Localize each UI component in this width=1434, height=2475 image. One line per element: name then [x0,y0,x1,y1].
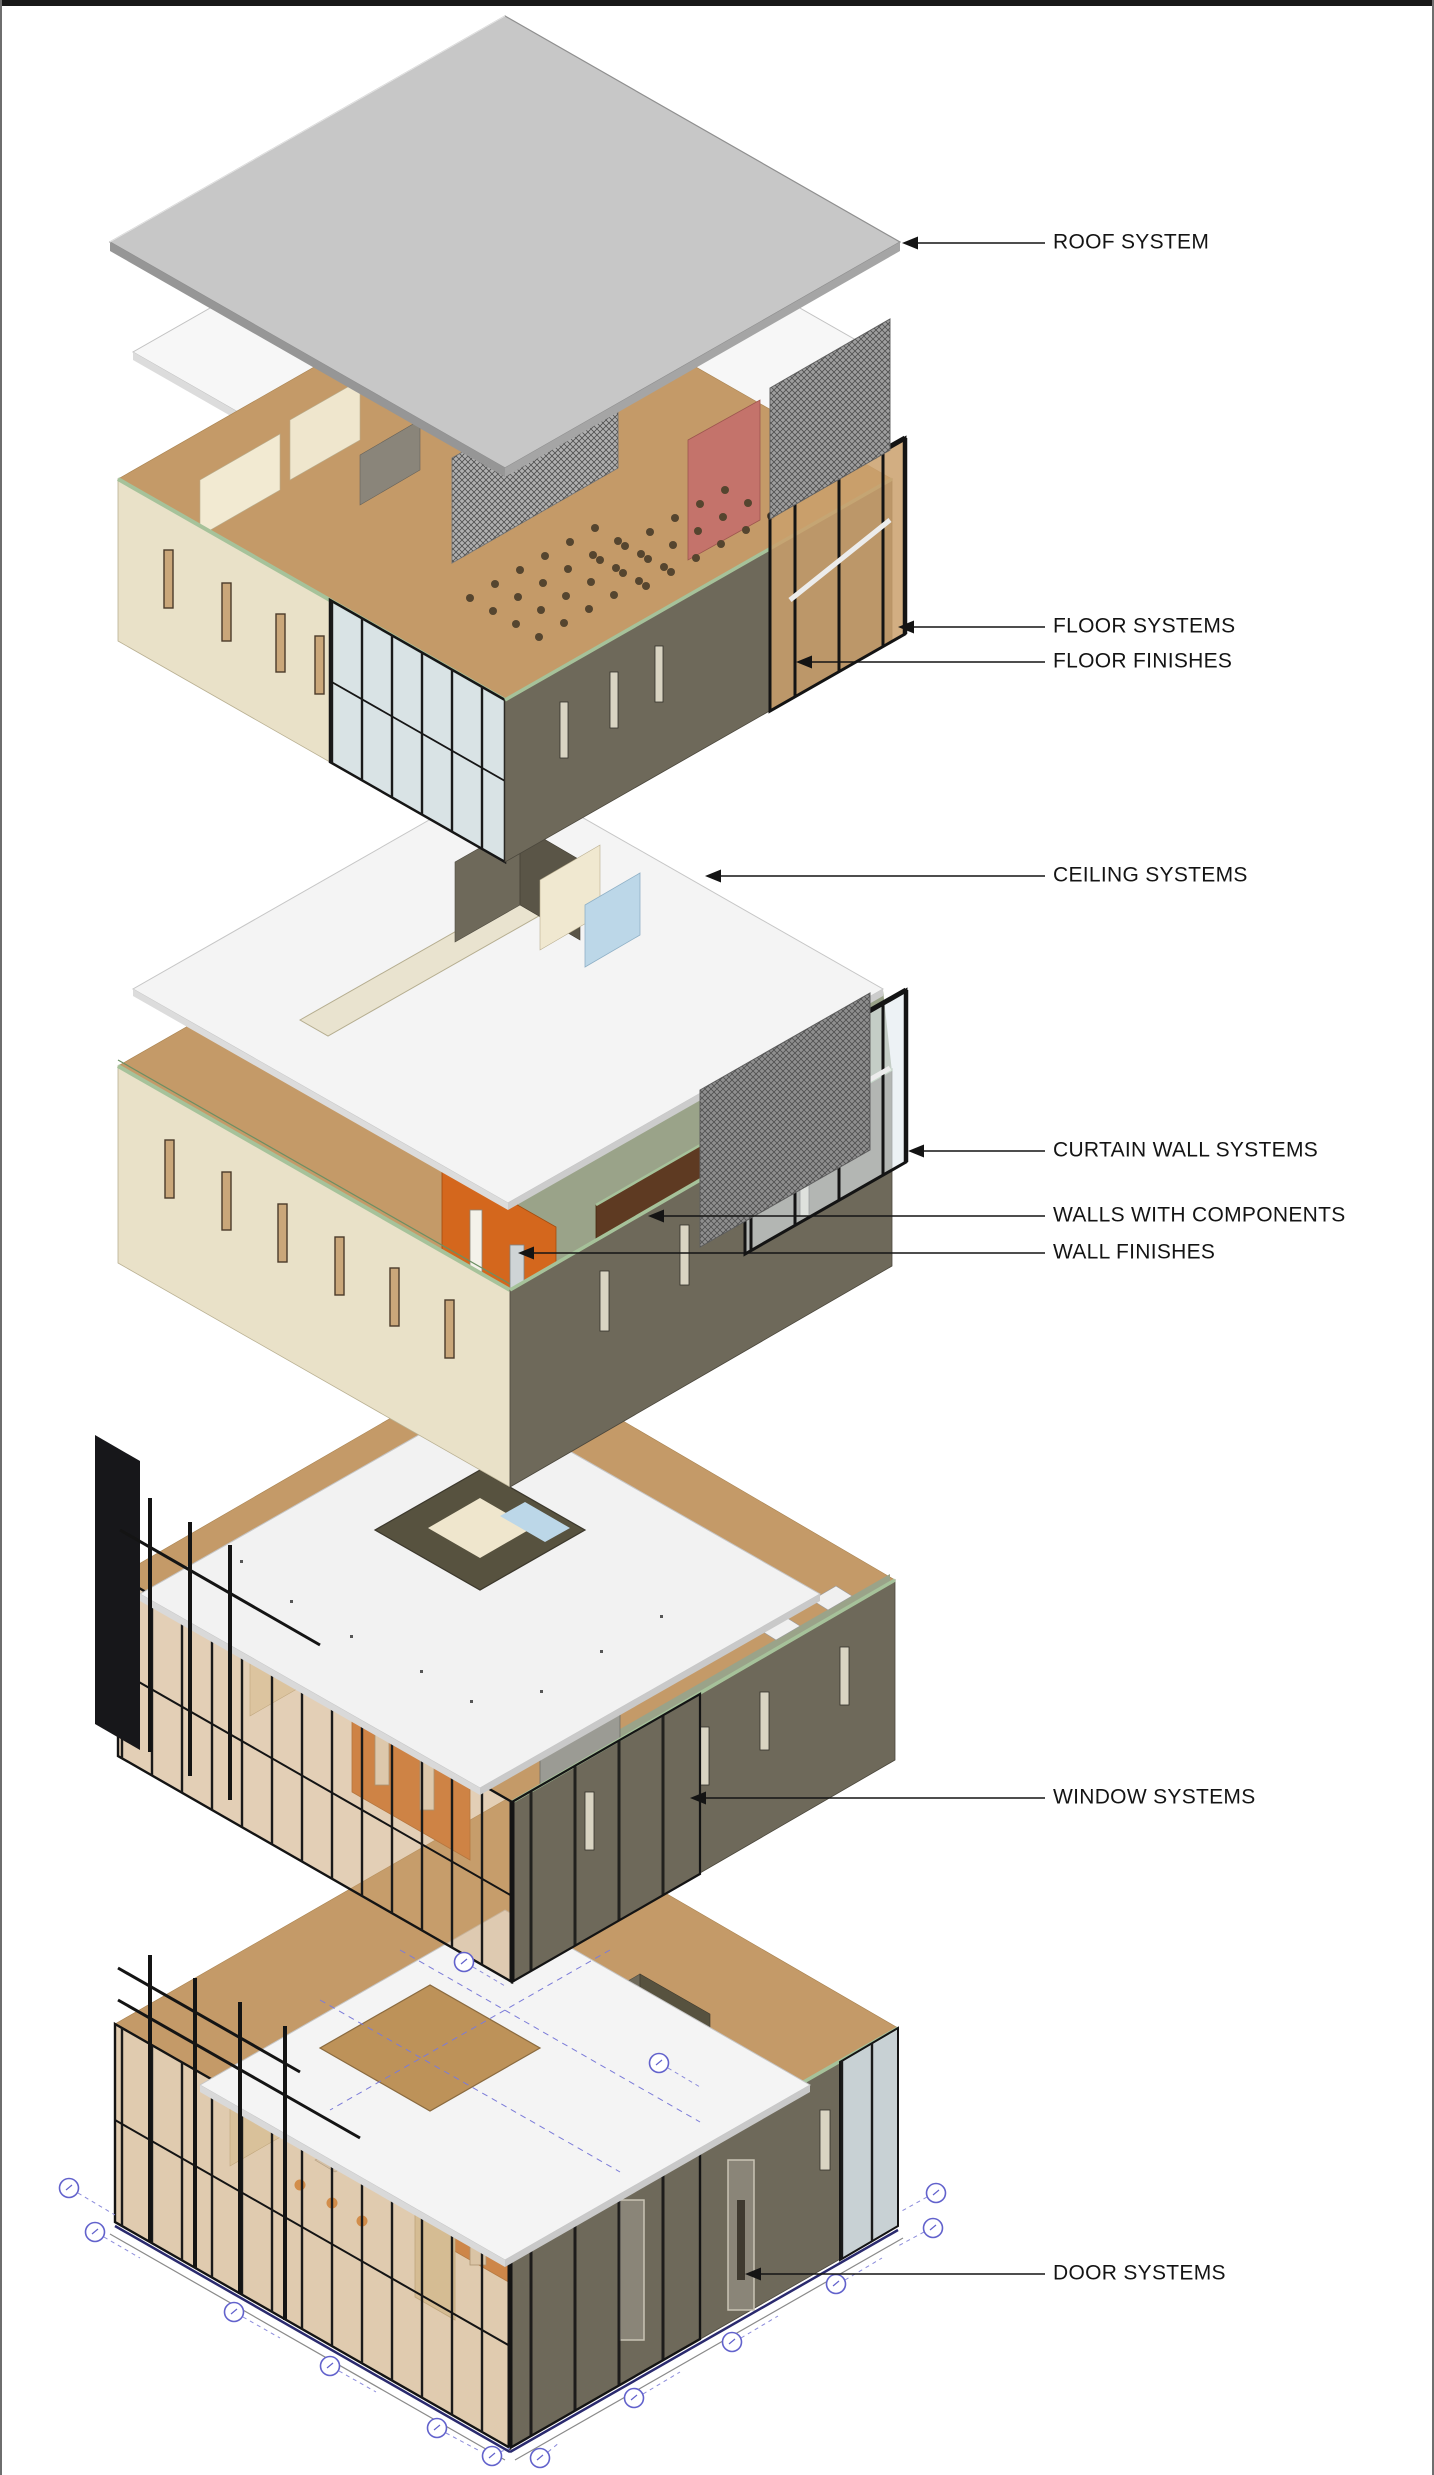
callout-label: WINDOW SYSTEMS [1053,1786,1256,1809]
callout-floor-systems: FLOOR SYSTEMS [898,615,1235,638]
window-slit [840,1647,849,1705]
door-leaf [737,2200,745,2280]
window-slit [655,646,663,702]
diagram-canvas: ROOF SYSTEMFLOOR SYSTEMSFLOOR FINISHESCE… [0,0,1434,2475]
cluster-roof-floor [110,16,905,862]
window-slit [610,672,618,728]
callout-curtain-wall-systems: CURTAIN WALL SYSTEMS [908,1139,1318,1162]
callout-ceiling-systems: CEILING SYSTEMS [705,864,1248,887]
callout-roof-system: ROOF SYSTEM [902,231,1209,254]
callout-label: CEILING SYSTEMS [1053,864,1248,887]
window-slit [560,702,568,758]
top-bar [0,0,1434,6]
exploded-axon-diagram-sheet: ROOF SYSTEMFLOOR SYSTEMSFLOOR FINISHESCE… [0,0,1434,2475]
left-frame-line [0,0,2,2475]
window-slit [600,1271,609,1331]
callout-label: FLOOR FINISHES [1053,650,1232,673]
black-wall-panel [95,1435,140,1750]
callout-label: WALLS WITH COMPONENTS [1053,1204,1346,1227]
leader-arrowhead-icon [902,237,918,250]
callout-label: DOOR SYSTEMS [1053,2262,1226,2285]
window-slit [700,1727,709,1785]
curtain-wall-mullions [840,2028,898,2260]
callout-label: CURTAIN WALL SYSTEMS [1053,1139,1318,1162]
leader-arrowhead-icon [705,870,721,883]
callout-label: FLOOR SYSTEMS [1053,615,1235,638]
callout-label: ROOF SYSTEM [1053,231,1209,254]
cluster-wall-systems [118,775,906,1487]
window-slit [820,2110,830,2170]
window-slit [760,1692,769,1750]
window-slit [680,1225,689,1285]
callout-label: WALL FINISHES [1053,1241,1215,1264]
leader-arrowhead-icon [908,1145,924,1158]
